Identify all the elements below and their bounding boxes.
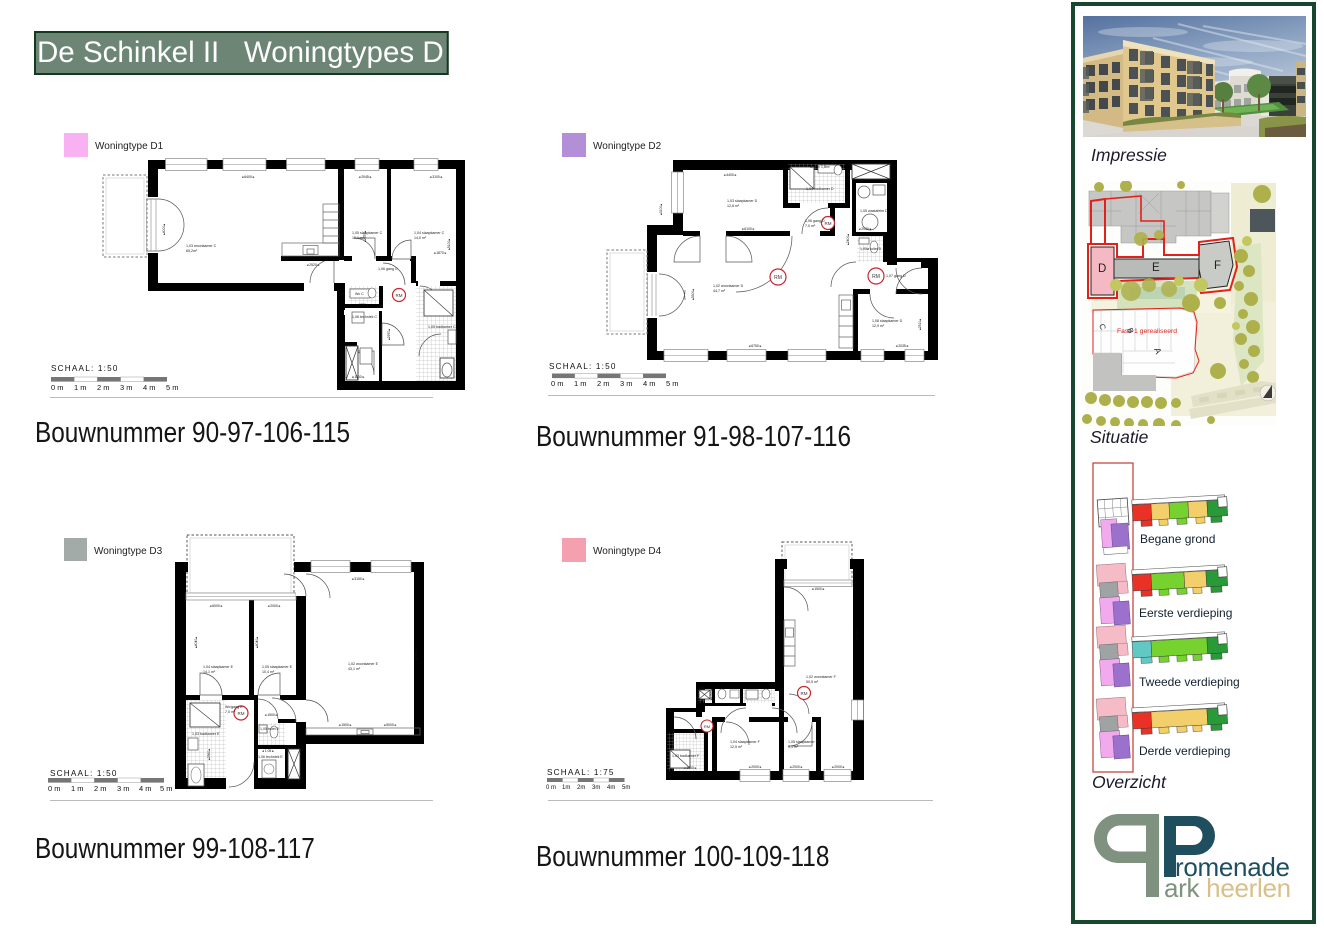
svg-text:RM: RM [801,691,808,696]
svg-text:▴4040▴: ▴4040▴ [255,637,259,648]
svg-text:0 m: 0 m [48,784,61,793]
svg-text:▴2670▴: ▴2670▴ [363,231,367,242]
svg-text:◂ 1760 ▸: ◂ 1760 ▸ [195,786,208,790]
svg-text:1,03 badkamer F: 1,03 badkamer F [672,754,700,758]
svg-text:1,04 slaapkamer E: 1,04 slaapkamer E [203,665,234,669]
svg-text:5m: 5m [622,785,630,791]
svg-text:◂ 6000 ▸: ◂ 6000 ▸ [210,604,223,608]
svg-text:1,04 badkamer D: 1,04 badkamer D [806,187,834,191]
svg-text:14,1 m²: 14,1 m² [203,670,216,674]
svg-text:◂ 1870 ▸: ◂ 1870 ▸ [434,251,447,255]
svg-text:4m: 4m [607,785,615,791]
svg-text:1 m: 1 m [71,784,84,793]
svg-text:1,05 slaapkamer F: 1,05 slaapkamer F [788,740,819,744]
svg-text:2 m: 2 m [597,379,610,388]
svg-text:65,2m²: 65,2m² [186,249,198,253]
svg-text:RM: RM [872,274,880,280]
svg-text:1m: 1m [562,785,570,791]
svg-text:RM: RM [396,293,403,298]
svg-text:◂ 1000 ▸: ◂ 1000 ▸ [684,766,697,770]
svg-text:5 m: 5 m [666,379,679,388]
svg-text:◂ 2000 ▸: ◂ 2000 ▸ [749,765,762,769]
svg-text:◂ 4400 ▸: ◂ 4400 ▸ [724,173,737,177]
svg-text:1,06 techniek C: 1,06 techniek C [352,315,377,319]
svg-text:1 m: 1 m [74,383,87,392]
svg-text:1,06 gang C: 1,06 gang C [378,267,398,271]
svg-text:▴7000▴: ▴7000▴ [855,629,859,640]
svg-text:7,0 m²: 7,0 m² [805,224,816,228]
svg-text:◂ 2520 ▸: ◂ 2520 ▸ [307,263,320,267]
svg-text:1,03 woonkamer C: 1,03 woonkamer C [186,244,217,248]
svg-text:1,03 slaapkamer D: 1,03 slaapkamer D [727,199,758,203]
svg-text:◂ 2030 ▸: ◂ 2030 ▸ [859,227,872,231]
svg-text:RM: RM [238,711,245,716]
svg-text:1,02 woonkamer F: 1,02 woonkamer F [806,675,837,679]
svg-text:RM: RM [825,221,832,226]
svg-text:▴5100▴: ▴5100▴ [447,239,451,250]
svg-text:SCHAAL: 1:50: SCHAAL: 1:50 [50,769,118,778]
svg-text:12,5 m²: 12,5 m² [730,745,743,749]
svg-text:10,4 m²: 10,4 m² [262,670,275,674]
svg-text:2 m: 2 m [94,784,107,793]
svg-text:◂ 2045 ▸: ◂ 2045 ▸ [359,175,372,179]
svg-text:1,06 techniek E: 1,06 techniek E [258,755,283,759]
svg-text:1,05 badkamer C: 1,05 badkamer C [428,325,456,329]
svg-text:3 m: 3 m [117,784,130,793]
svg-text:3 m: 3 m [120,383,133,392]
svg-text:50,5 m²: 50,5 m² [806,680,819,684]
svg-text:▴3100▴: ▴3100▴ [659,204,663,215]
svg-text:◂ 6100 ▸: ◂ 6100 ▸ [742,227,755,231]
svg-text:1,05 wastafelm D: 1,05 wastafelm D [860,209,888,213]
svg-text:RM: RM [704,724,710,729]
svg-text:1 m: 1 m [574,379,587,388]
svg-text:◂ 3150 ▸: ◂ 3150 ▸ [352,577,365,581]
svg-text:D: D [1098,263,1106,275]
svg-text:5 m: 5 m [160,784,173,793]
svg-text:1,04 slaapkamer C: 1,04 slaapkamer C [414,231,445,235]
svg-text:◂ 6400 ▸: ◂ 6400 ▸ [242,175,255,179]
svg-text:◂ 1730 ▸: ◂ 1730 ▸ [356,303,369,307]
svg-text:2,0 m² 1,5m³: 2,0 m² 1,5m³ [810,165,830,169]
svg-text:SCHAAL: 1:75: SCHAAL: 1:75 [547,768,615,777]
svg-text:▴2400▴: ▴2400▴ [887,189,891,200]
svg-text:◂ 6750 ▸: ◂ 6750 ▸ [749,344,762,348]
svg-text:1,05a toilet D: 1,05a toilet D [860,247,882,251]
svg-text:1,06 gang D: 1,06 gang D [805,219,825,223]
svg-text:0 m: 0 m [551,379,564,388]
svg-text:◂ 1500 ▸: ◂ 1500 ▸ [339,723,352,727]
svg-text:44,7 m²: 44,7 m² [713,289,726,293]
svg-text:◂ 5000 ▸: ◂ 5000 ▸ [384,723,397,727]
svg-text:9,1 m²: 9,1 m² [788,745,799,749]
svg-text:2 m: 2 m [97,383,110,392]
svg-text:1,02 woonkamer E: 1,02 woonkamer E [348,662,379,666]
svg-text:3m: 3m [592,785,600,791]
svg-text:SCHAAL: 1:50: SCHAAL: 1:50 [51,364,119,373]
svg-text:▴2560▴: ▴2560▴ [207,749,211,760]
svg-text:▴2400▴: ▴2400▴ [846,234,850,245]
svg-text:▴5300▴: ▴5300▴ [691,289,695,300]
svg-text:◂ 1500 ▸: ◂ 1500 ▸ [812,587,825,591]
svg-text:◂ 3100 ▸: ◂ 3100 ▸ [430,175,443,179]
svg-text:4 m: 4 m [643,379,656,388]
svg-text:◂ 2000 ▸: ◂ 2000 ▸ [832,765,845,769]
svg-text:7,0 m²: 7,0 m² [225,710,236,714]
svg-text:12,6 m²: 12,6 m² [727,204,740,208]
svg-text:3 m: 3 m [620,379,633,388]
svg-text:1,02 woonkamer D: 1,02 woonkamer D [713,284,744,288]
svg-text:1,05 slaapkamer C: 1,05 slaapkamer C [352,231,383,235]
svg-text:◂ 2000 ▸: ◂ 2000 ▸ [790,765,803,769]
svg-text:▴4000▴: ▴4000▴ [162,224,166,235]
svg-text:▴2970▴: ▴2970▴ [387,329,391,340]
svg-text:▴4040▴: ▴4040▴ [194,637,198,648]
svg-text:1,04 slaapkamer F: 1,04 slaapkamer F [730,740,761,744]
svg-text:4 m: 4 m [139,784,152,793]
svg-text:12,9 m²: 12,9 m² [872,324,885,328]
svg-text:◂ 1500 ▸: ◂ 1500 ▸ [265,713,278,717]
svg-text:SCHAAL: 1:50: SCHAAL: 1:50 [549,362,617,371]
svg-text:F: F [1214,260,1221,272]
svg-text:0 m: 0 m [546,785,556,791]
svg-text:▴1500▴: ▴1500▴ [709,689,713,700]
svg-text:43,1 m²: 43,1 m² [348,667,361,671]
svg-text:1,05 slaapkamer E: 1,05 slaapkamer E [262,665,293,669]
svg-text:◂ 1100 ▸: ◂ 1100 ▸ [352,375,365,379]
svg-text:4 m: 4 m [143,383,156,392]
svg-text:1,07 gang D: 1,07 gang D [886,274,906,278]
svg-text:Wc C: Wc C [355,292,364,296]
svg-text:ark heerlen: ark heerlen [1164,873,1291,903]
svg-text:1,08 slaapkamer D: 1,08 slaapkamer D [872,319,903,323]
svg-text:Wc/gang E: Wc/gang E [225,705,243,709]
svg-text:5 m: 5 m [166,383,179,392]
svg-text:2m: 2m [577,785,585,791]
svg-text:◂ 2000 ▸: ◂ 2000 ▸ [268,604,281,608]
svg-text:1,07: 1,07 [698,687,705,691]
svg-text:◂ 1 05 ▸: ◂ 1 05 ▸ [262,749,274,753]
svg-text:14,0 m²: 14,0 m² [414,236,427,240]
svg-text:▴2510▴: ▴2510▴ [918,319,922,330]
svg-text:◂ 2035 ▸: ◂ 2035 ▸ [896,344,909,348]
svg-text:E: E [1152,262,1160,274]
svg-text:▴7500▴: ▴7500▴ [414,649,418,660]
svg-text:RM: RM [774,275,782,281]
svg-text:0 m: 0 m [51,383,64,392]
svg-text:1,03 badkamer E: 1,03 badkamer E [192,732,220,736]
svg-text:1,05 toilet E: 1,05 toilet E [260,727,280,731]
